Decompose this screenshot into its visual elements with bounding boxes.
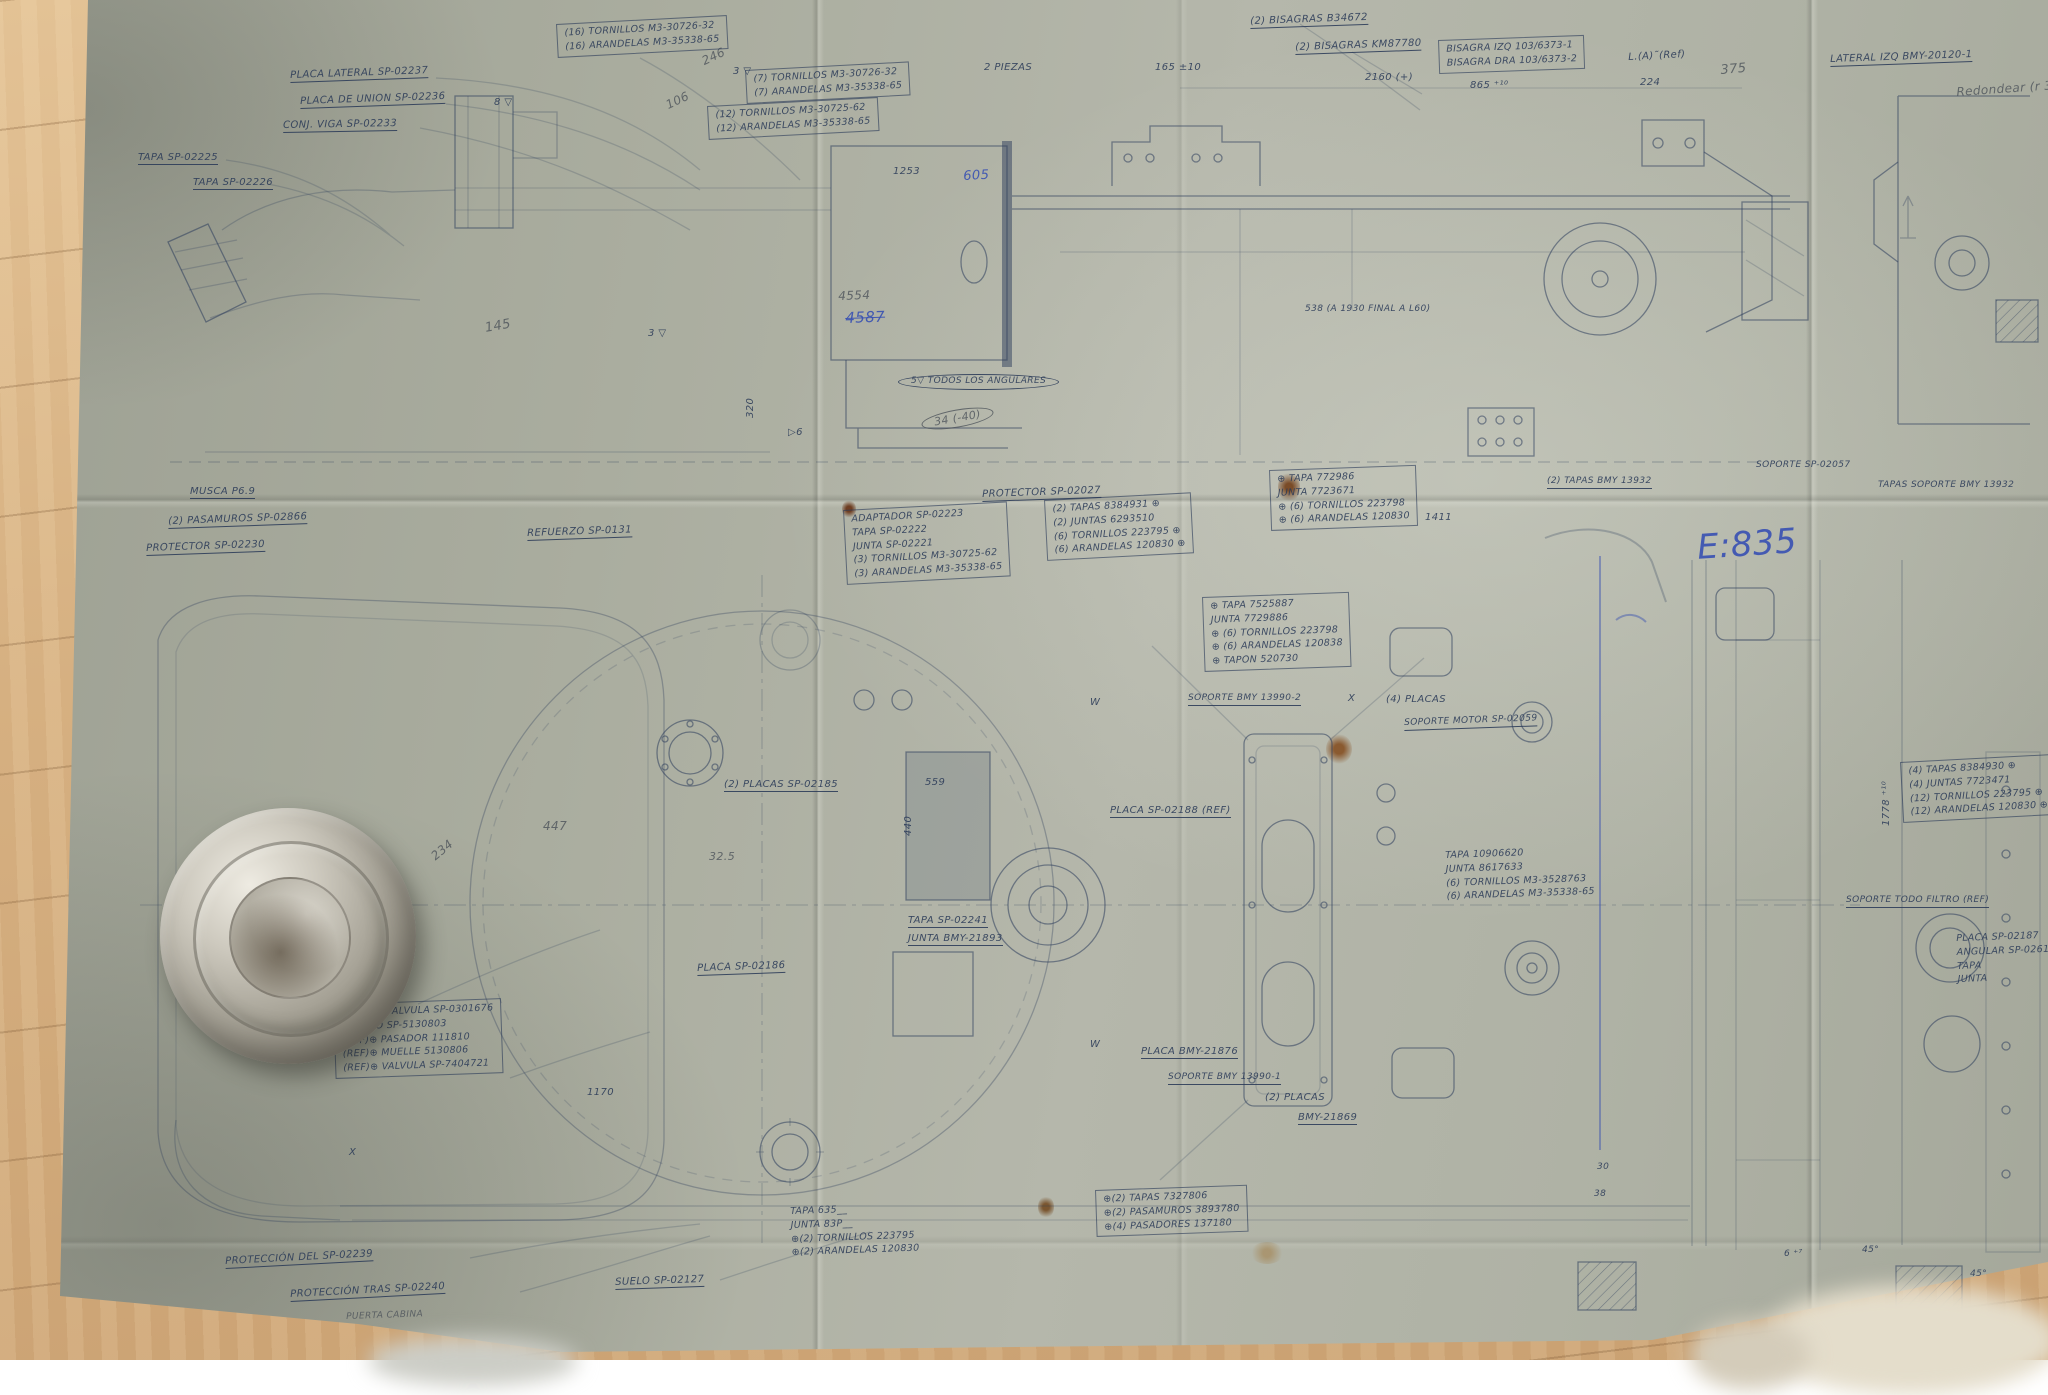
metal-disc: [160, 808, 416, 1064]
blurred-foot-shadow: [1690, 1320, 1810, 1390]
blurred-cloth: [368, 1336, 578, 1386]
metal-disc-core: [229, 877, 351, 999]
blueprint-drawing: [0, 0, 2048, 1360]
